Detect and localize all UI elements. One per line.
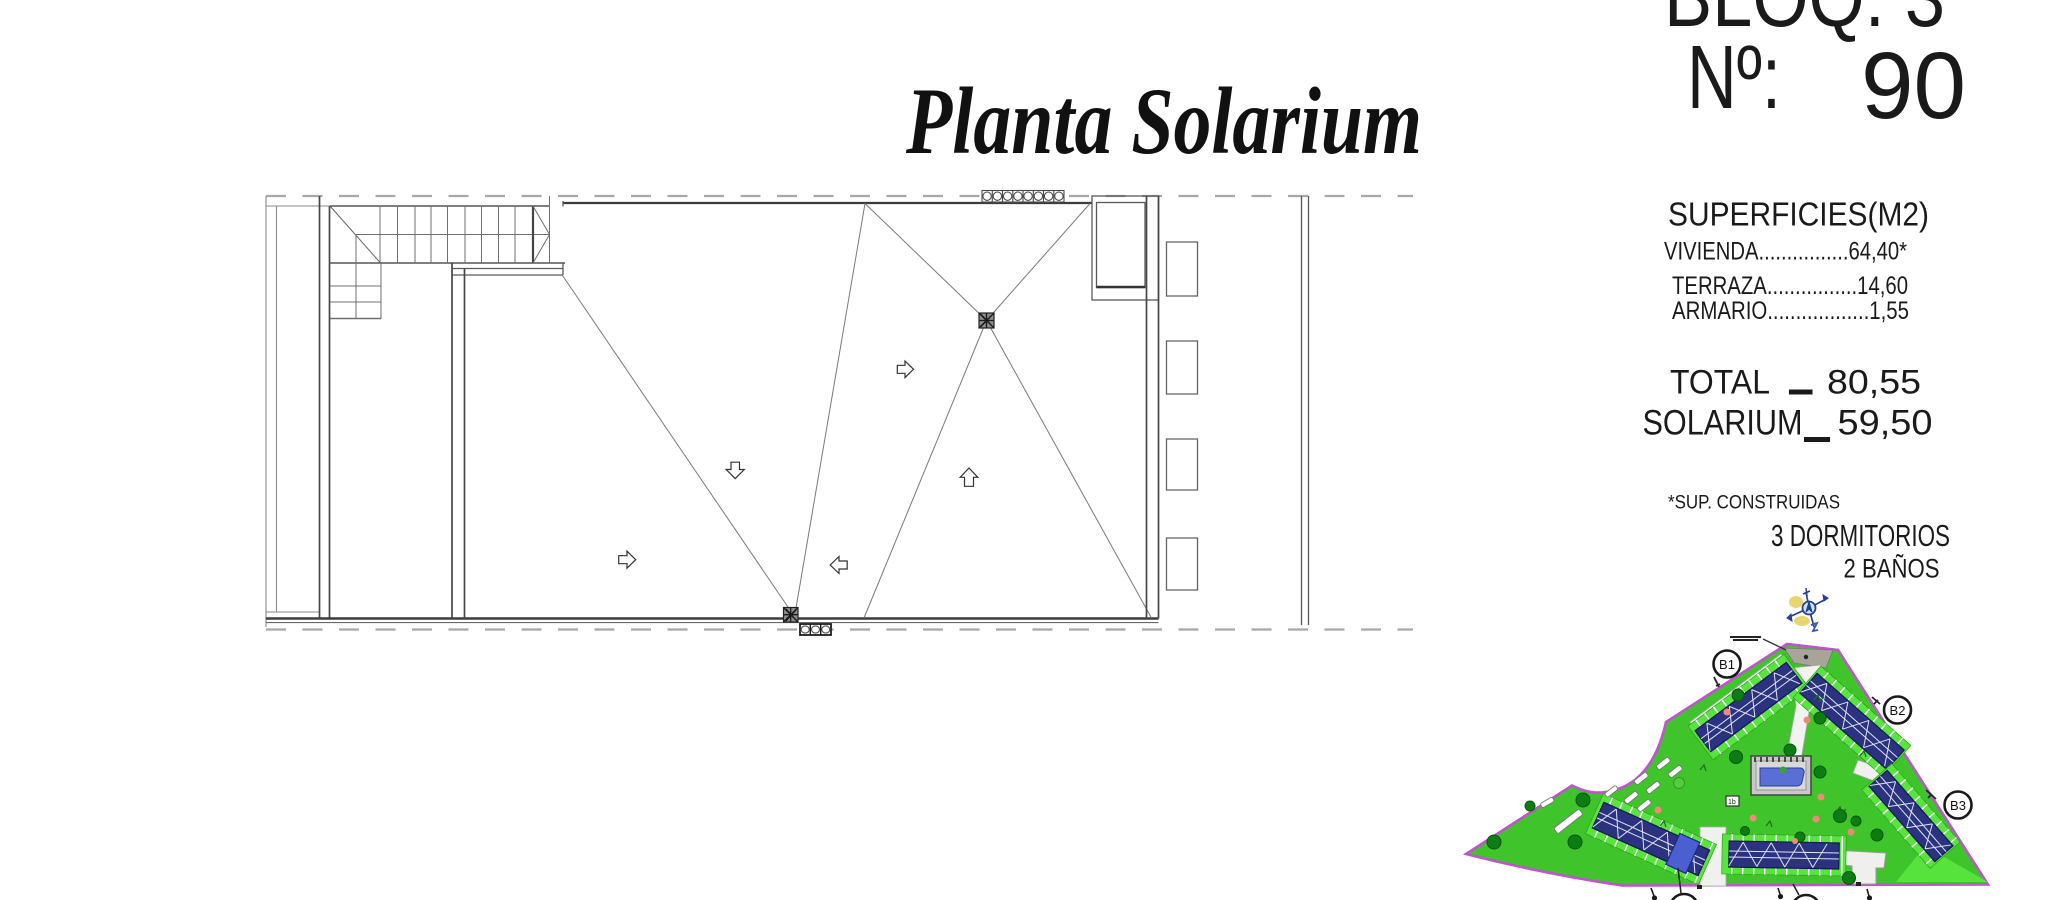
svg-text:SOLARIUM: SOLARIUM: [1643, 404, 1803, 443]
svg-text:B3: B3: [1950, 798, 1966, 813]
svg-text:1b: 1b: [1728, 799, 1736, 806]
svg-text:B1: B1: [1719, 657, 1735, 672]
svg-text:2 BAÑOS: 2 BAÑOS: [1844, 553, 1940, 584]
svg-text:80,55: 80,55: [1827, 364, 1921, 402]
svg-text:TOTAL: TOTAL: [1670, 364, 1770, 402]
svg-text:Planta Solarium: Planta Solarium: [905, 68, 1422, 174]
svg-text:3 DORMITORIOS: 3 DORMITORIOS: [1771, 519, 1950, 553]
svg-text:59,50: 59,50: [1838, 404, 1933, 443]
svg-text:SUPERFICIES(M2): SUPERFICIES(M2): [1668, 196, 1929, 233]
svg-text:*SUP. CONSTRUIDAS: *SUP. CONSTRUIDAS: [1668, 493, 1840, 514]
svg-text:90: 90: [1861, 33, 1966, 139]
svg-text:ARMARIO..................1,55: ARMARIO..................1,55: [1672, 297, 1909, 325]
svg-text:Nº:: Nº:: [1687, 28, 1781, 128]
svg-text:B2: B2: [1890, 703, 1906, 718]
svg-text:VIVIENDA................64,40*: VIVIENDA................64,40*: [1664, 238, 1907, 266]
svg-text:TERRAZA................14,60: TERRAZA................14,60: [1672, 272, 1908, 300]
